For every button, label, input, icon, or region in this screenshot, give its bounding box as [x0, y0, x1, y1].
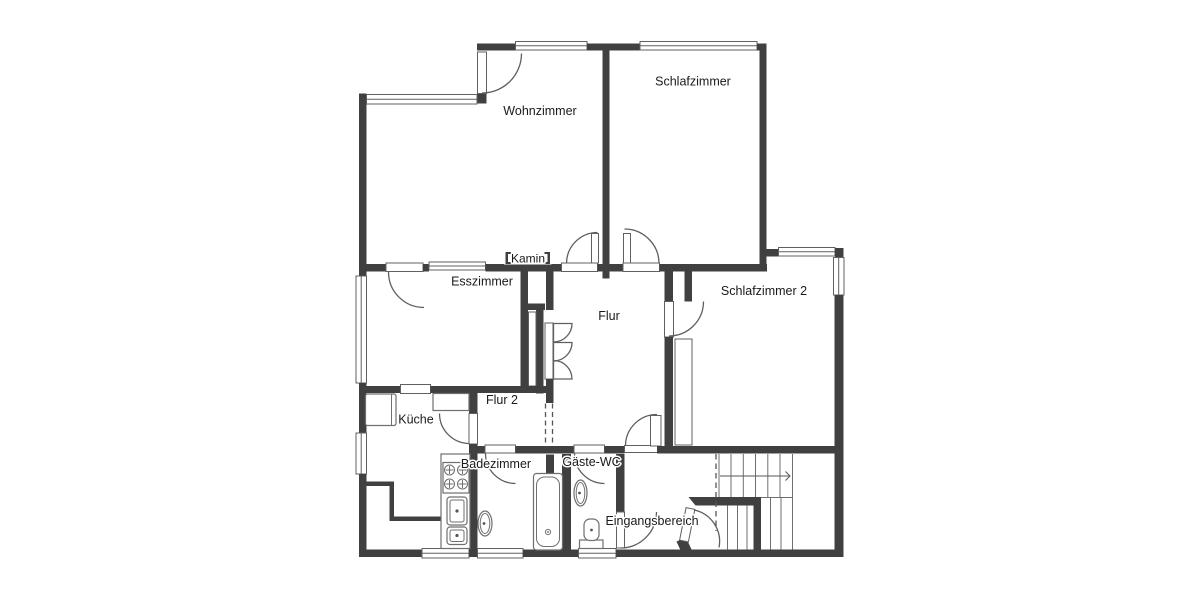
svg-text:Badezimmer: Badezimmer: [461, 457, 531, 471]
svg-text:Flur 2: Flur 2: [486, 393, 518, 407]
svg-text:Schlafzimmer 2: Schlafzimmer 2: [721, 284, 807, 298]
svg-text:Schlafzimmer: Schlafzimmer: [655, 75, 731, 89]
svg-text:Esszimmer: Esszimmer: [451, 275, 513, 289]
svg-text:Eingangsbereich: Eingangsbereich: [605, 514, 698, 528]
svg-text:Küche: Küche: [398, 413, 433, 427]
svg-text:Wohnzimmer: Wohnzimmer: [503, 104, 576, 118]
svg-text:Flur: Flur: [598, 309, 620, 323]
svg-text:Kamin: Kamin: [511, 252, 545, 266]
svg-text:Gäste-WC: Gäste-WC: [562, 455, 620, 469]
